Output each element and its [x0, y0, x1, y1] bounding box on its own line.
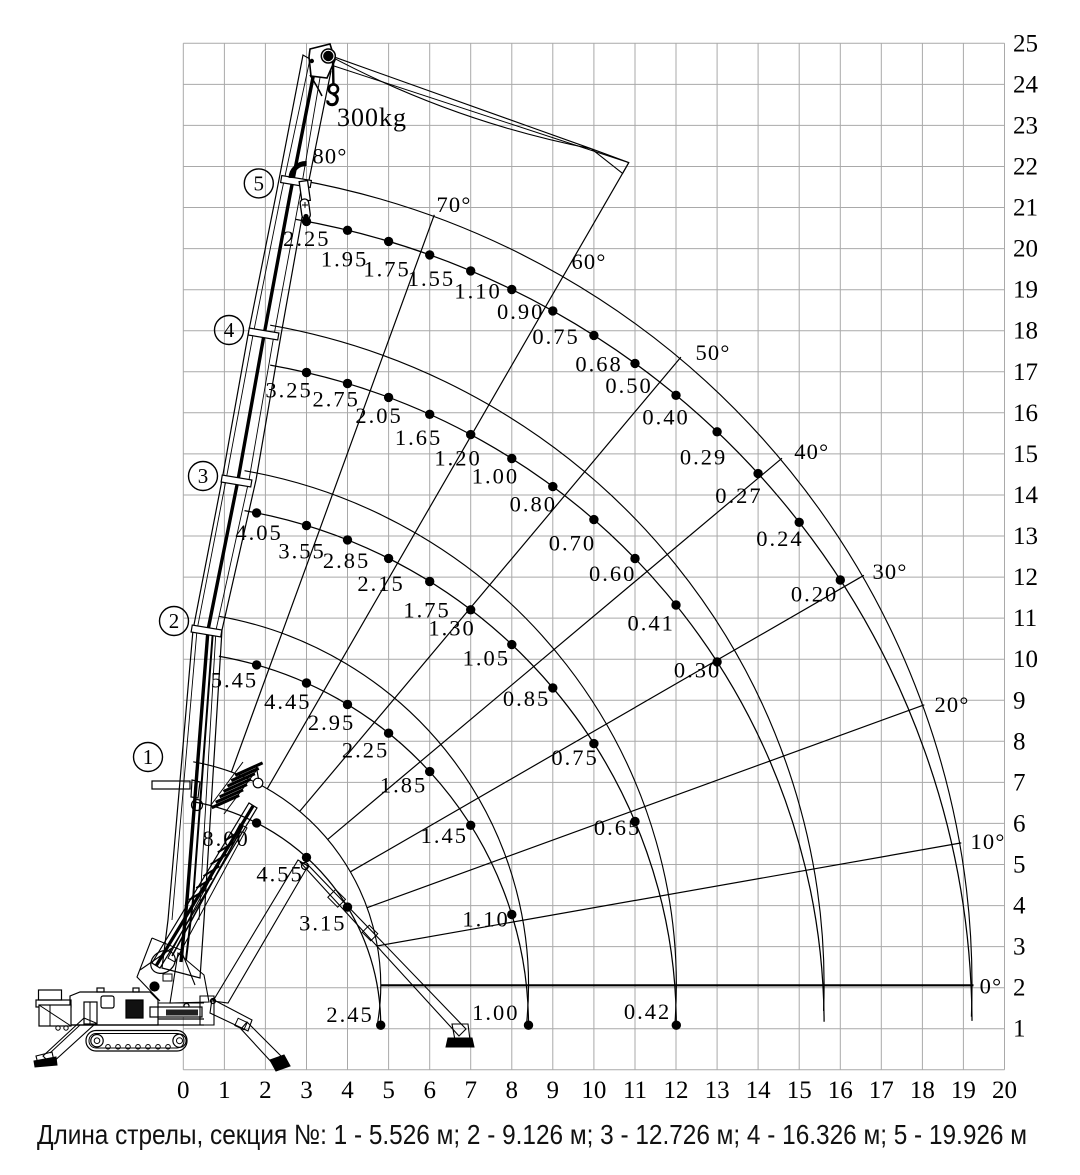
svg-text:20°: 20°	[934, 692, 969, 717]
svg-text:0.75: 0.75	[532, 324, 579, 349]
svg-text:12: 12	[1013, 564, 1038, 591]
svg-text:14: 14	[1013, 482, 1039, 509]
svg-text:16: 16	[828, 1077, 853, 1104]
svg-text:0.75: 0.75	[551, 745, 598, 770]
svg-text:1.75: 1.75	[363, 257, 410, 282]
svg-text:0.60: 0.60	[589, 561, 636, 586]
svg-text:14: 14	[746, 1077, 772, 1104]
svg-text:1: 1	[1013, 1016, 1026, 1043]
svg-text:0.27: 0.27	[715, 483, 762, 508]
svg-text:23: 23	[1013, 112, 1038, 139]
svg-text:1.45: 1.45	[421, 823, 468, 848]
svg-text:4.45: 4.45	[264, 689, 311, 714]
svg-text:0.41: 0.41	[628, 611, 675, 636]
svg-text:2.85: 2.85	[323, 548, 370, 573]
svg-text:16: 16	[1013, 400, 1038, 427]
svg-text:20: 20	[992, 1077, 1017, 1104]
svg-text:12: 12	[664, 1077, 689, 1104]
svg-text:1.00: 1.00	[472, 464, 519, 489]
svg-text:13: 13	[705, 1077, 730, 1104]
svg-text:0.42: 0.42	[624, 999, 671, 1024]
svg-text:3.55: 3.55	[278, 539, 325, 564]
svg-text:25: 25	[1013, 30, 1038, 57]
svg-text:18: 18	[1013, 318, 1038, 345]
svg-text:4: 4	[1013, 893, 1026, 920]
svg-text:7: 7	[464, 1077, 477, 1104]
svg-text:19: 19	[951, 1077, 976, 1104]
svg-text:17: 17	[869, 1077, 894, 1104]
svg-text:20: 20	[1013, 236, 1038, 263]
svg-text:2.45: 2.45	[326, 1002, 373, 1027]
svg-text:4: 4	[224, 318, 235, 342]
svg-text:3: 3	[198, 464, 209, 488]
svg-text:0.80: 0.80	[510, 491, 557, 516]
svg-text:9: 9	[1013, 687, 1026, 714]
svg-text:0.29: 0.29	[680, 445, 727, 470]
svg-text:19: 19	[1013, 277, 1038, 304]
svg-text:17: 17	[1013, 359, 1038, 386]
svg-text:21: 21	[1013, 195, 1038, 222]
svg-text:10: 10	[581, 1077, 606, 1104]
svg-text:1.95: 1.95	[321, 247, 368, 272]
svg-text:2.75: 2.75	[313, 387, 360, 412]
svg-text:3.15: 3.15	[299, 910, 346, 935]
svg-text:0.70: 0.70	[549, 530, 596, 555]
svg-text:15: 15	[1013, 441, 1038, 468]
svg-text:6: 6	[1013, 810, 1026, 837]
svg-text:300kg: 300kg	[337, 103, 407, 132]
svg-text:4: 4	[341, 1077, 354, 1104]
svg-text:24: 24	[1013, 71, 1039, 98]
svg-text:1.10: 1.10	[454, 278, 501, 303]
svg-text:7: 7	[1013, 769, 1026, 796]
svg-text:5: 5	[1013, 852, 1026, 879]
svg-text:80°: 80°	[312, 144, 347, 169]
svg-text:30°: 30°	[872, 559, 907, 584]
svg-text:2.95: 2.95	[308, 710, 355, 735]
svg-text:18: 18	[910, 1077, 935, 1104]
svg-text:2.15: 2.15	[357, 571, 404, 596]
svg-text:1.05: 1.05	[463, 645, 510, 670]
svg-text:13: 13	[1013, 523, 1038, 550]
svg-text:0.40: 0.40	[642, 404, 689, 429]
svg-text:3: 3	[1013, 934, 1026, 961]
svg-text:1: 1	[143, 745, 154, 769]
svg-text:2.25: 2.25	[342, 737, 389, 762]
svg-text:8: 8	[1013, 728, 1026, 755]
svg-text:1.55: 1.55	[408, 266, 455, 291]
svg-text:8: 8	[506, 1077, 519, 1104]
svg-text:11: 11	[623, 1077, 647, 1104]
svg-text:1: 1	[218, 1077, 231, 1104]
svg-text:0.90: 0.90	[497, 299, 544, 324]
svg-text:0.30: 0.30	[674, 658, 721, 683]
svg-text:5: 5	[254, 171, 265, 195]
svg-text:2: 2	[259, 1077, 272, 1104]
svg-text:3: 3	[300, 1077, 313, 1104]
svg-text:0°: 0°	[980, 974, 1003, 999]
svg-text:11: 11	[1013, 605, 1037, 632]
svg-text:10°: 10°	[970, 829, 1005, 854]
svg-text:1.30: 1.30	[428, 616, 475, 641]
svg-text:0.50: 0.50	[605, 373, 652, 398]
svg-text:15: 15	[787, 1077, 812, 1104]
svg-text:0: 0	[177, 1077, 190, 1104]
svg-text:5: 5	[382, 1077, 395, 1104]
svg-text:0.20: 0.20	[791, 581, 838, 606]
svg-text:2: 2	[169, 609, 180, 633]
svg-text:60°: 60°	[571, 249, 606, 274]
svg-text:0.85: 0.85	[503, 686, 550, 711]
svg-text:50°: 50°	[695, 340, 730, 365]
svg-text:1.00: 1.00	[472, 1000, 519, 1025]
svg-text:0.24: 0.24	[756, 526, 803, 551]
svg-text:6: 6	[423, 1077, 436, 1104]
svg-text:10: 10	[1013, 646, 1038, 673]
svg-text:4.55: 4.55	[256, 862, 303, 887]
svg-text:Длина стрелы, секция №: 1 - 5.: Длина стрелы, секция №: 1 - 5.526 м; 2 -…	[37, 1119, 1027, 1150]
svg-text:9: 9	[547, 1077, 560, 1104]
svg-text:1.85: 1.85	[380, 772, 427, 797]
svg-text:22: 22	[1013, 154, 1038, 181]
svg-text:70°: 70°	[436, 192, 471, 217]
svg-text:40°: 40°	[794, 439, 829, 464]
svg-text:2: 2	[1013, 975, 1026, 1002]
svg-text:0.65: 0.65	[594, 815, 641, 840]
svg-text:1.10: 1.10	[462, 907, 509, 932]
